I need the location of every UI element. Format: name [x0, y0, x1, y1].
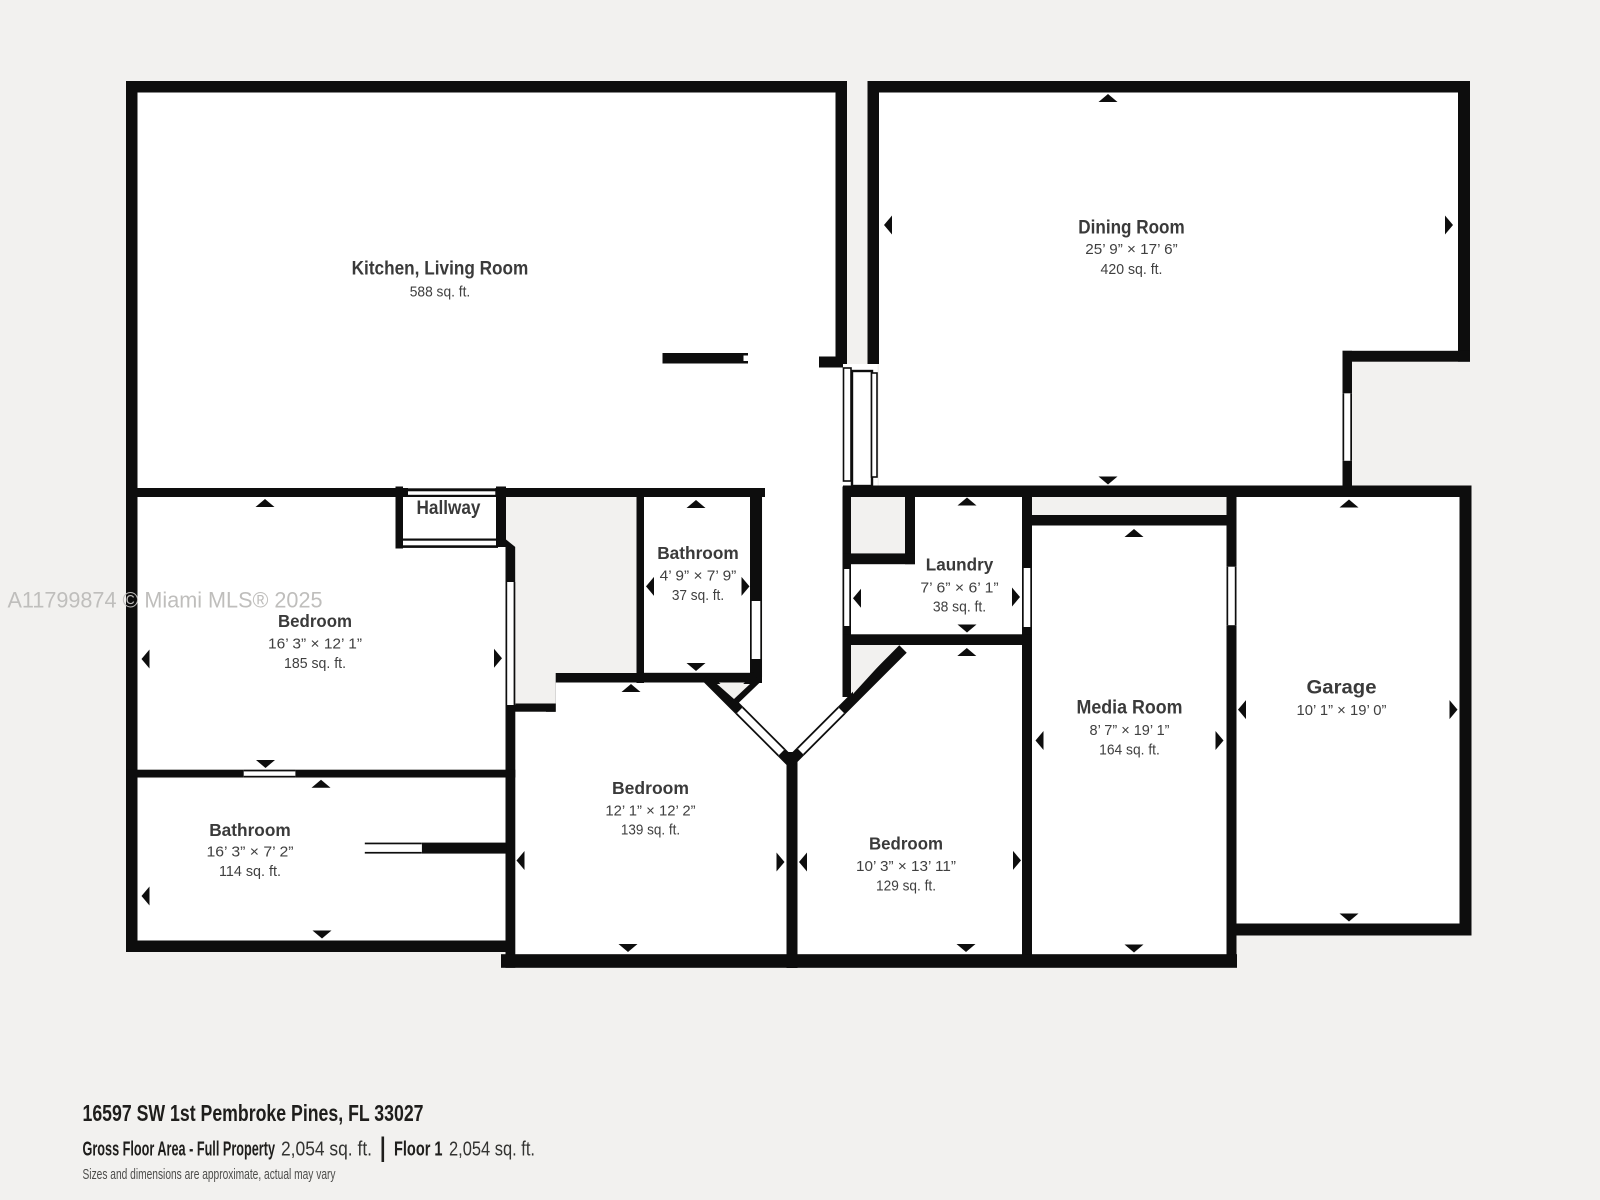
svg-text:Bedroom: Bedroom [612, 778, 689, 798]
svg-text:Bathroom: Bathroom [657, 543, 739, 563]
svg-text:164 sq. ft.: 164 sq. ft. [1099, 742, 1160, 759]
svg-text:A11799874 © Miami MLS® 2025: A11799874 © Miami MLS® 2025 [8, 588, 323, 613]
svg-text:129 sq. ft.: 129 sq. ft. [876, 878, 936, 895]
svg-text:588 sq. ft.: 588 sq. ft. [410, 284, 471, 301]
svg-text:38 sq. ft.: 38 sq. ft. [933, 599, 986, 616]
svg-text:10’ 3” × 13’ 11”: 10’ 3” × 13’ 11” [856, 858, 956, 875]
svg-text:185 sq. ft.: 185 sq. ft. [284, 655, 346, 672]
svg-text:25’ 9” × 17’ 6”: 25’ 9” × 17’ 6” [1085, 241, 1177, 258]
svg-text:8’ 7” × 19’ 1”: 8’ 7” × 19’ 1” [1090, 722, 1170, 739]
svg-text:139 sq. ft.: 139 sq. ft. [621, 822, 680, 839]
svg-text:2,054 sq. ft.: 2,054 sq. ft. [281, 1139, 372, 1161]
svg-text:2,054 sq. ft.: 2,054 sq. ft. [449, 1139, 535, 1161]
svg-text:Kitchen, Living Room: Kitchen, Living Room [352, 258, 529, 280]
svg-text:7’ 6” × 6’ 1”: 7’ 6” × 6’ 1” [920, 580, 998, 597]
svg-text:114 sq. ft.: 114 sq. ft. [219, 863, 281, 880]
svg-text:4’ 9” × 7’ 9”: 4’ 9” × 7’ 9” [660, 568, 737, 585]
svg-text:Bathroom: Bathroom [209, 820, 291, 840]
svg-text:Sizes and dimensions are appro: Sizes and dimensions are approximate, ac… [83, 1166, 336, 1183]
svg-text:Floor 1: Floor 1 [394, 1139, 443, 1161]
svg-text:16’ 3” × 12’ 1”: 16’ 3” × 12’ 1” [268, 636, 362, 653]
svg-text:Laundry: Laundry [926, 555, 994, 575]
svg-text:37 sq. ft.: 37 sq. ft. [672, 587, 724, 604]
svg-text:Dining Room: Dining Room [1078, 217, 1184, 239]
svg-text:Garage: Garage [1307, 677, 1377, 699]
svg-text:Bedroom: Bedroom [869, 834, 943, 854]
svg-text:Media Room: Media Room [1077, 697, 1183, 719]
svg-text:10’ 1” × 19’ 0”: 10’ 1” × 19’ 0” [1297, 702, 1387, 719]
svg-text:16’ 3” × 7’ 2”: 16’ 3” × 7’ 2” [207, 844, 294, 861]
svg-text:12’ 1” × 12’ 2”: 12’ 1” × 12’ 2” [605, 803, 695, 820]
svg-text:Hallway: Hallway [417, 498, 481, 519]
svg-text:420 sq. ft.: 420 sq. ft. [1101, 261, 1163, 278]
svg-text:16597 SW 1st Pembroke Pines, F: 16597 SW 1st Pembroke Pines, FL 33027 [83, 1100, 424, 1126]
svg-text:Gross Floor Area - Full Proper: Gross Floor Area - Full Property [83, 1139, 276, 1161]
svg-text:Bedroom: Bedroom [278, 611, 352, 631]
